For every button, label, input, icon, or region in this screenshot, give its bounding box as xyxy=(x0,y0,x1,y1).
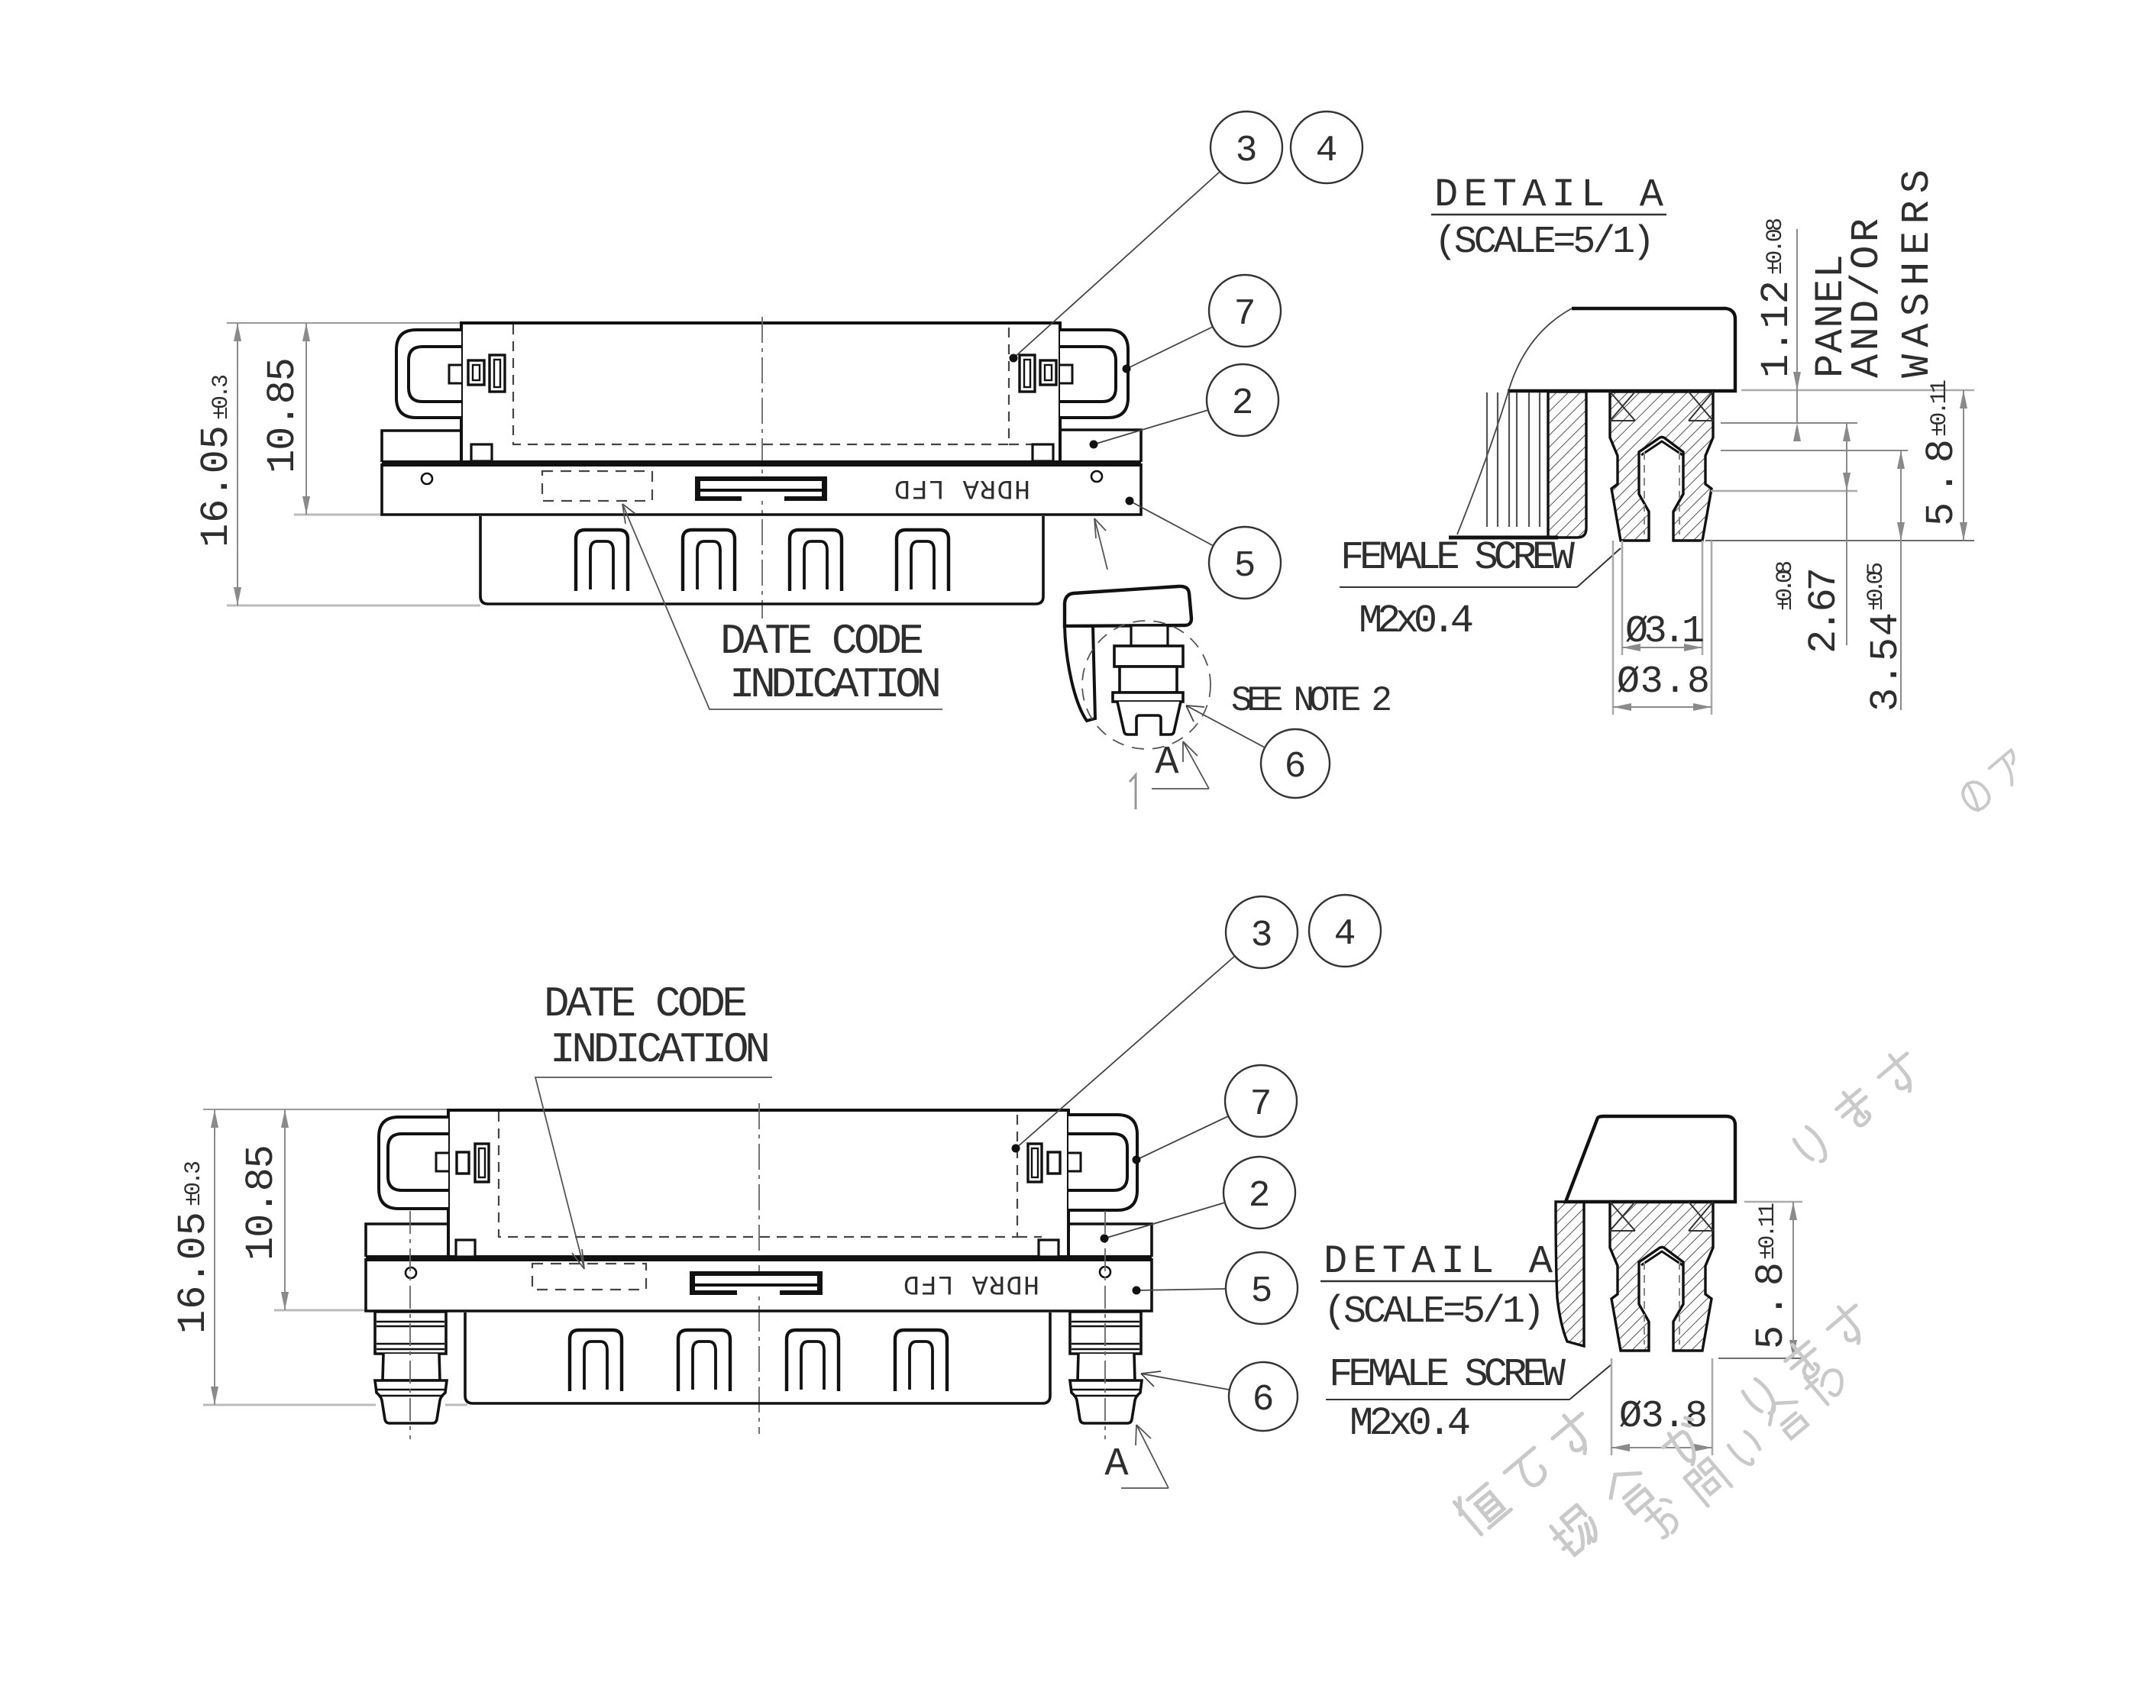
svg-text:5.8: 5.8 xyxy=(1919,439,1964,526)
svg-text:3.54: 3.54 xyxy=(1863,612,1909,712)
svg-text:6: 6 xyxy=(1285,747,1307,788)
svg-text:16.05: 16.05 xyxy=(171,1212,216,1334)
svg-text:2.67: 2.67 xyxy=(1802,567,1847,654)
svg-text:6: 6 xyxy=(1253,1380,1275,1421)
svg-text:±0.11: ±0.11 xyxy=(1755,1203,1781,1260)
svg-text:2: 2 xyxy=(1249,1176,1271,1217)
svg-text:±0.05: ±0.05 xyxy=(1863,562,1889,611)
svg-text:10.85: 10.85 xyxy=(239,1145,284,1261)
svg-text:INDICATION: INDICATION xyxy=(550,1025,771,1074)
svg-text:3: 3 xyxy=(1236,131,1258,172)
svg-text:(SCALE=5/1): (SCALE=5/1) xyxy=(1324,1290,1545,1334)
svg-text:INDICATION: INDICATION xyxy=(729,660,942,709)
svg-text:4: 4 xyxy=(1316,131,1338,172)
svg-text:7: 7 xyxy=(1234,294,1256,335)
svg-text:M2x0.4: M2x0.4 xyxy=(1350,1401,1471,1446)
svg-text:DATE CODE: DATE CODE xyxy=(544,980,748,1028)
svg-text:DATE CODE: DATE CODE xyxy=(720,617,924,666)
svg-text:±0.3: ±0.3 xyxy=(208,374,234,420)
svg-text:5: 5 xyxy=(1251,1271,1273,1312)
svg-text:10.85: 10.85 xyxy=(260,357,305,473)
svg-text:FEMALE SCREW: FEMALE SCREW xyxy=(1340,535,1576,580)
svg-text:Ø3.8: Ø3.8 xyxy=(1619,1395,1708,1438)
svg-text:±0.08: ±0.08 xyxy=(1773,560,1799,611)
svg-text:5.8: 5.8 xyxy=(1749,1262,1794,1349)
svg-text:SEE NOTE 2: SEE NOTE 2 xyxy=(1231,681,1392,721)
svg-text:±0.11: ±0.11 xyxy=(1927,379,1953,437)
svg-text:±0.08: ±0.08 xyxy=(1763,218,1789,275)
svg-text:WASHERS: WASHERS xyxy=(1895,170,1940,378)
svg-text:4: 4 xyxy=(1334,914,1356,955)
svg-text:Ø3.8: Ø3.8 xyxy=(1617,660,1710,704)
svg-text:(SCALE=5/1): (SCALE=5/1) xyxy=(1434,221,1655,264)
svg-text:HDRA LFD: HDRA LFD xyxy=(894,473,1030,503)
svg-text:5: 5 xyxy=(1234,546,1256,587)
svg-text:3: 3 xyxy=(1251,915,1273,957)
svg-text:7: 7 xyxy=(1250,1084,1272,1125)
svg-text:A: A xyxy=(1155,740,1179,785)
svg-text:16.05: 16.05 xyxy=(194,425,239,547)
svg-text:2: 2 xyxy=(1232,383,1254,425)
svg-text:FEMALE SCREW: FEMALE SCREW xyxy=(1329,1352,1566,1397)
svg-text:A: A xyxy=(1104,1442,1129,1487)
svg-text:1.12: 1.12 xyxy=(1754,280,1799,378)
svg-text:HDRA LFD: HDRA LFD xyxy=(903,1268,1039,1299)
svg-text:±0.3: ±0.3 xyxy=(181,1161,207,1206)
svg-text:M2x0.4: M2x0.4 xyxy=(1359,599,1474,644)
svg-text:Ø3.1: Ø3.1 xyxy=(1625,610,1705,654)
